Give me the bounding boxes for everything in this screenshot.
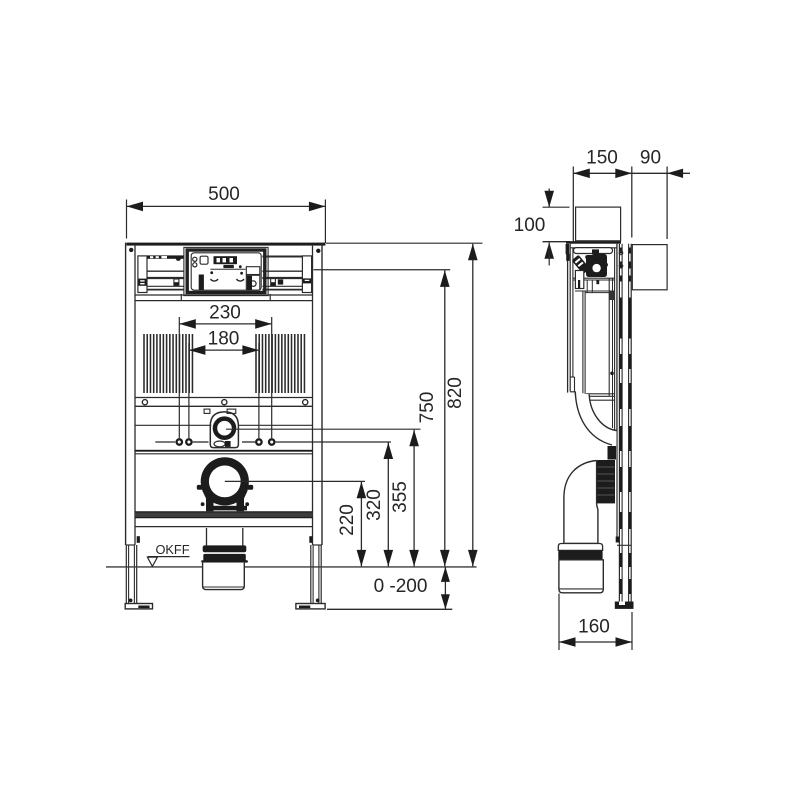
svg-text:90: 90 <box>640 148 661 169</box>
svg-text:750: 750 <box>417 392 438 424</box>
svg-text:0 -200: 0 -200 <box>374 576 428 597</box>
svg-text:820: 820 <box>445 377 466 409</box>
svg-text:150: 150 <box>586 148 618 169</box>
svg-text:OKFF: OKFF <box>155 542 189 557</box>
svg-text:220: 220 <box>337 504 358 536</box>
svg-text:100: 100 <box>514 215 546 236</box>
svg-text:320: 320 <box>364 489 385 521</box>
svg-text:160: 160 <box>578 617 610 638</box>
svg-text:230: 230 <box>209 303 241 324</box>
svg-text:500: 500 <box>208 184 240 205</box>
svg-text:355: 355 <box>390 481 411 513</box>
svg-text:180: 180 <box>208 329 240 350</box>
